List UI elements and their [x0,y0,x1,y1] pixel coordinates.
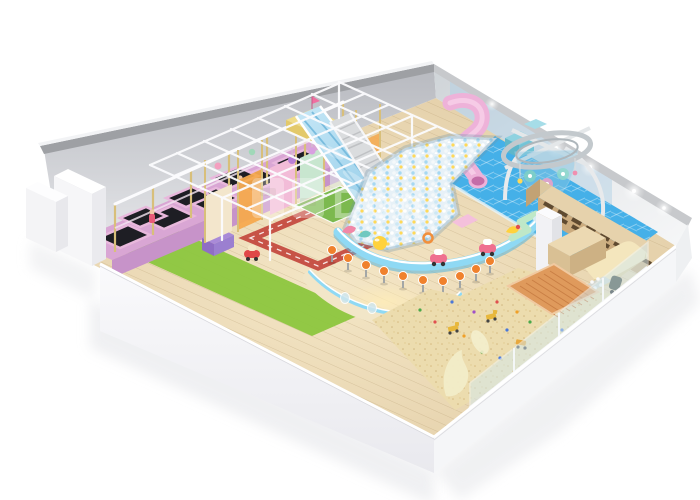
playground-render: Don [0,0,700,500]
watermark-glyph [252,178,284,218]
playground-scene: Don [0,0,700,500]
watermark-text: Don [332,179,424,228]
